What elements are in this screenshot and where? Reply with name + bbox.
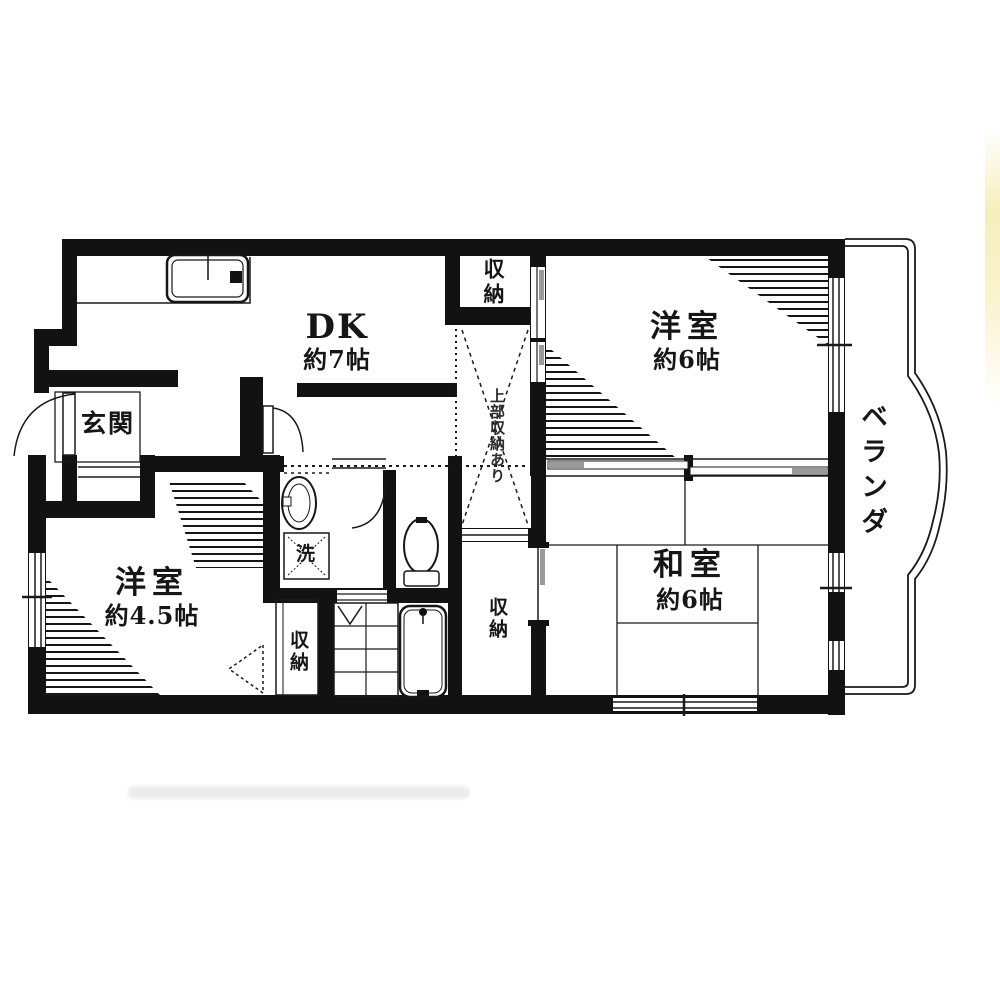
open-door-triangle	[229, 645, 263, 693]
floor-plan-drawing	[0, 0, 1000, 1001]
faded-caption-smudge	[128, 786, 470, 799]
dk-door-arc	[263, 406, 303, 453]
scan-edge-strip	[985, 128, 1000, 408]
storage-label-bottom-left: 収納	[288, 630, 307, 674]
room-label-veranda: ベランダ	[858, 402, 885, 542]
room-label-entrance: 玄関	[76, 411, 140, 436]
room-label-dk: DK	[297, 310, 377, 344]
storage-label-top: 収納	[483, 258, 504, 308]
room-size-japanese: 約6帖	[630, 588, 750, 612]
entrance-door-arc	[14, 393, 75, 456]
storage-label-bottom-right: 収納	[487, 597, 506, 641]
room-label-western-6: 洋室	[627, 312, 747, 343]
washroom-door-arc	[352, 480, 386, 528]
upper-storage-note: 上部収納あり	[489, 388, 504, 484]
toilet-icon	[404, 517, 439, 586]
room-label-western-45: 洋室	[92, 568, 212, 599]
room-size-western-6: 約6帖	[627, 348, 747, 372]
room-size-dk: 約7帖	[277, 348, 397, 372]
washbasin-icon	[282, 477, 316, 529]
laundry-label: 洗	[296, 545, 315, 564]
bathtub-icon	[400, 606, 446, 699]
room-label-japanese: 和室	[630, 550, 750, 581]
shelf-grid	[334, 603, 398, 696]
room-size-western-45: 約4.5帖	[82, 604, 222, 628]
floor-plan-page: DK 約7帖 洋室 約6帖 和室 約6帖 洋室 約4.5帖 玄関 収納 上部収納…	[0, 0, 1000, 1001]
